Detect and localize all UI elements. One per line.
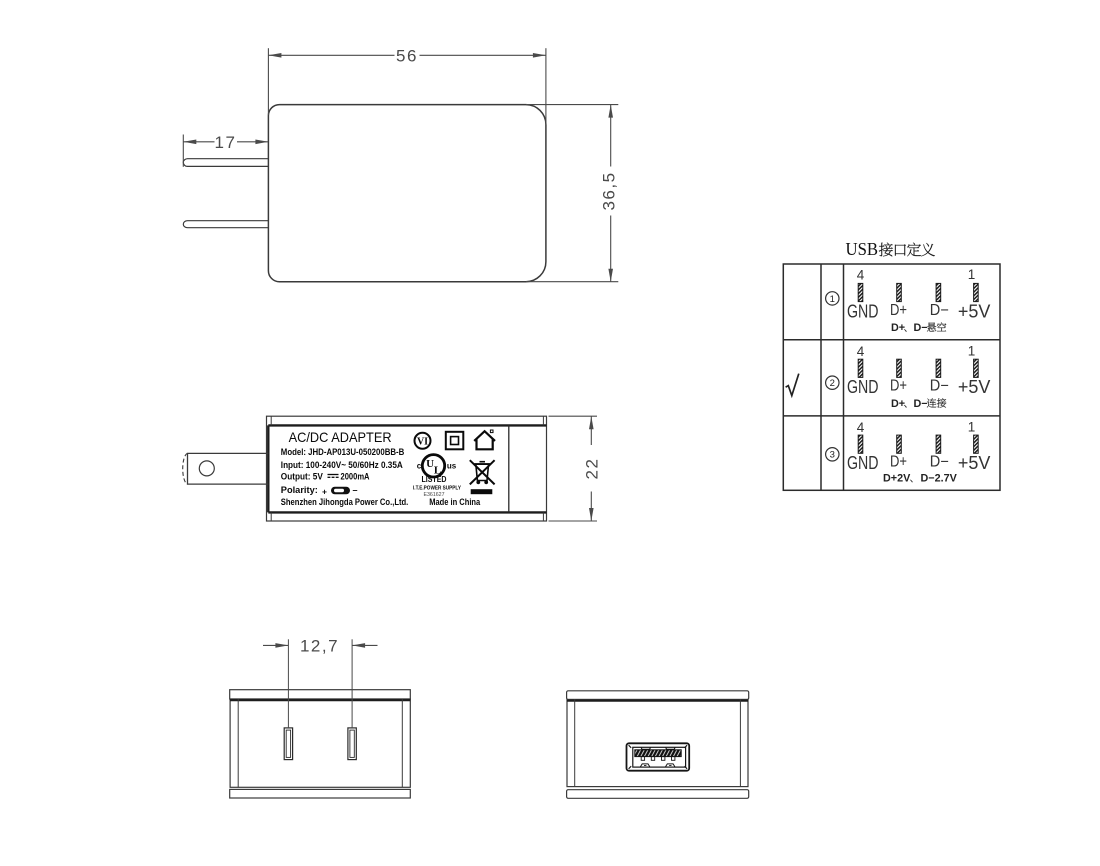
- svg-text:Output: 5V: Output: 5V: [281, 472, 324, 482]
- svg-text:LISTED: LISTED: [422, 475, 447, 484]
- svg-text:D+: D+: [891, 398, 905, 410]
- svg-text:3: 3: [830, 450, 835, 461]
- svg-text:GND: GND: [847, 376, 879, 397]
- svg-text:I.T.E.POWER SUPPLY: I.T.E.POWER SUPPLY: [413, 486, 461, 492]
- svg-text:12,7: 12,7: [300, 637, 339, 656]
- svg-text:D−: D−: [914, 398, 928, 410]
- svg-text:56: 56: [396, 47, 418, 66]
- svg-text:AC/DC ADAPTER: AC/DC ADAPTER: [289, 430, 392, 445]
- svg-text:Polarity:: Polarity:: [281, 485, 318, 495]
- svg-text:E361627: E361627: [424, 492, 445, 498]
- svg-text:c: c: [417, 462, 422, 471]
- svg-text:GND: GND: [847, 300, 879, 321]
- svg-text:4: 4: [857, 267, 865, 282]
- svg-text:4: 4: [857, 344, 865, 359]
- svg-text:2000mA: 2000mA: [341, 472, 370, 482]
- svg-text:Input: 100-240V~ 50/60Hz 0.3: Input: 100-240V~ 50/60Hz 0.35A: [281, 460, 403, 470]
- svg-text:D−: D−: [914, 322, 928, 334]
- svg-text:D−: D−: [930, 454, 949, 471]
- svg-text:1: 1: [968, 344, 976, 359]
- svg-text:USB: USB: [846, 239, 879, 259]
- svg-text:Model: JHD-AP013U-050200BB-B: Model: JHD-AP013U-050200BB-B: [281, 447, 405, 457]
- svg-text:D−2.7V: D−2.7V: [921, 473, 958, 485]
- svg-text:us: us: [447, 462, 457, 471]
- svg-text:1: 1: [830, 294, 835, 305]
- svg-text:36,5: 36,5: [600, 171, 619, 210]
- svg-text:D+: D+: [890, 378, 907, 395]
- svg-text:+5V: +5V: [958, 452, 991, 473]
- svg-text:–: –: [353, 485, 358, 495]
- svg-text:Shenzhen Jihongda Power Co.,Lt: Shenzhen Jihongda Power Co.,Ltd.: [281, 497, 409, 507]
- svg-text:D+2V: D+2V: [883, 473, 911, 485]
- svg-text:22: 22: [582, 458, 601, 480]
- svg-text:Made in China: Made in China: [429, 497, 481, 507]
- svg-text:+5V: +5V: [958, 300, 991, 321]
- svg-text:D−: D−: [930, 302, 949, 319]
- svg-text:D−: D−: [930, 378, 949, 395]
- svg-text:1: 1: [968, 267, 976, 282]
- svg-text:1: 1: [968, 420, 976, 435]
- svg-text:2: 2: [830, 378, 835, 389]
- svg-text:D+: D+: [890, 302, 907, 319]
- svg-text:17: 17: [215, 133, 237, 152]
- svg-text:VI: VI: [417, 437, 428, 448]
- svg-text:GND: GND: [847, 452, 879, 473]
- svg-text:U: U: [426, 458, 434, 470]
- svg-text:+5V: +5V: [958, 376, 991, 397]
- svg-text:D+: D+: [890, 454, 907, 471]
- svg-text:+: +: [322, 487, 327, 497]
- svg-text:D+: D+: [891, 322, 905, 334]
- svg-text:4: 4: [857, 420, 865, 435]
